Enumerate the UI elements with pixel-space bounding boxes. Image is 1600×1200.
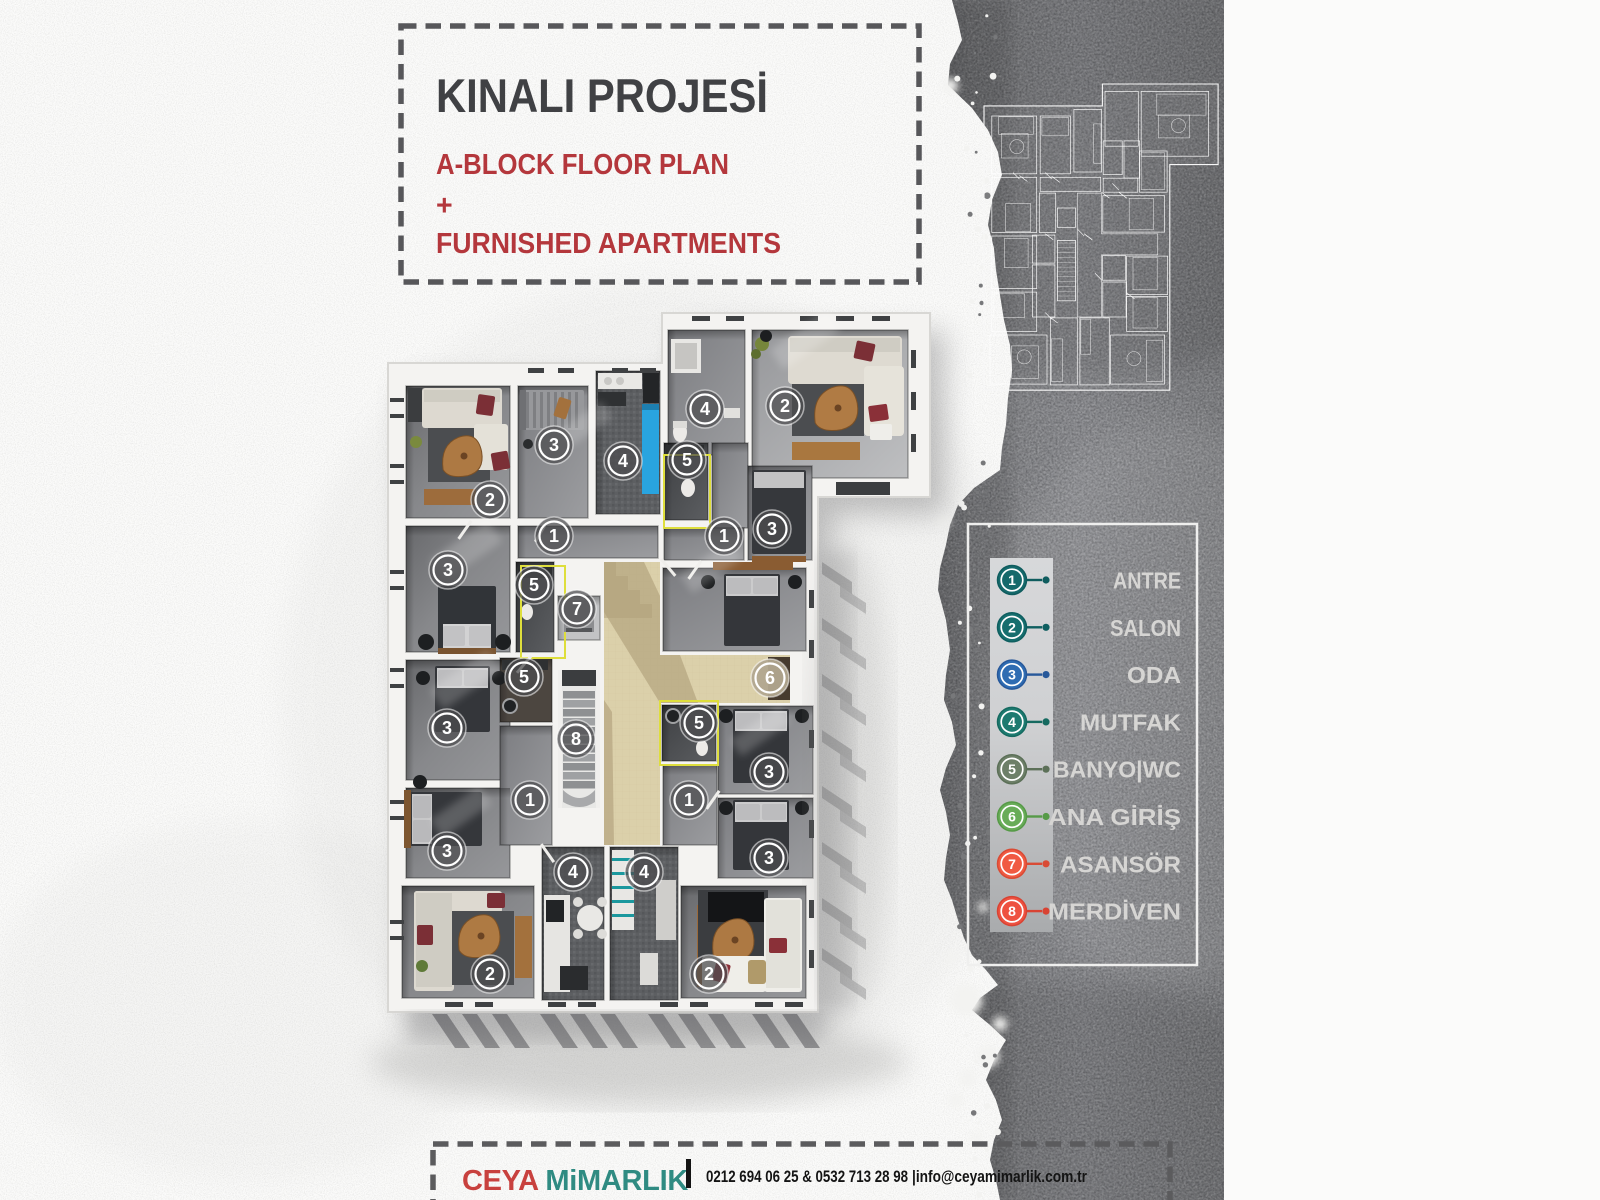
svg-text:BANYO|WC: BANYO|WC <box>1053 757 1181 783</box>
svg-text:8: 8 <box>1008 903 1016 919</box>
svg-text:ANTRE: ANTRE <box>1113 568 1181 594</box>
svg-text:1: 1 <box>719 526 729 546</box>
svg-text:SALON: SALON <box>1110 615 1181 641</box>
svg-text:4: 4 <box>568 862 578 882</box>
svg-text:1: 1 <box>1008 572 1016 588</box>
svg-text:2: 2 <box>485 964 495 984</box>
svg-text:3: 3 <box>764 762 774 782</box>
svg-text:1: 1 <box>684 790 694 810</box>
svg-text:MERDİVEN: MERDİVEN <box>1048 899 1181 925</box>
svg-text:KINALI PROJESİ: KINALI PROJESİ <box>436 69 768 122</box>
svg-text:5: 5 <box>519 667 529 687</box>
svg-text:ODA: ODA <box>1127 662 1181 688</box>
svg-text:1: 1 <box>549 526 559 546</box>
svg-text:MUTFAK: MUTFAK <box>1080 709 1181 735</box>
svg-text:2: 2 <box>485 490 495 510</box>
svg-text:5: 5 <box>682 450 692 470</box>
svg-text:3: 3 <box>764 848 774 868</box>
svg-text:2: 2 <box>704 964 714 984</box>
svg-text:|info@ceyamimarlik.com.tr: |info@ceyamimarlik.com.tr <box>912 1167 1087 1186</box>
svg-text:ANA GİRİŞ: ANA GİRİŞ <box>1048 804 1181 830</box>
svg-text:5: 5 <box>1008 761 1016 777</box>
svg-text:+: + <box>436 190 453 222</box>
svg-text:FURNISHED APARTMENTS: FURNISHED APARTMENTS <box>436 228 781 260</box>
svg-text:7: 7 <box>1008 856 1016 872</box>
svg-text:4: 4 <box>618 451 628 471</box>
svg-text:0212 694 06 25 & 0532 713 28 9: 0212 694 06 25 & 0532 713 28 98 <box>706 1167 908 1186</box>
svg-text:2: 2 <box>1008 619 1016 635</box>
svg-text:A-BLOCK FLOOR PLAN: A-BLOCK FLOOR PLAN <box>436 149 729 181</box>
svg-text:4: 4 <box>1008 714 1016 730</box>
svg-text:5: 5 <box>694 713 704 733</box>
svg-text:3: 3 <box>767 519 777 539</box>
svg-text:3: 3 <box>442 718 452 738</box>
svg-text:6: 6 <box>1008 809 1016 825</box>
svg-text:5: 5 <box>529 575 539 595</box>
svg-text:3: 3 <box>443 560 453 580</box>
svg-text:4: 4 <box>639 862 649 882</box>
svg-text:8: 8 <box>571 729 581 749</box>
svg-text:3: 3 <box>442 841 452 861</box>
svg-text:3: 3 <box>549 435 559 455</box>
svg-text:7: 7 <box>572 599 582 619</box>
svg-text:2: 2 <box>780 396 790 416</box>
svg-text:3: 3 <box>1008 667 1016 683</box>
svg-text:6: 6 <box>765 668 775 688</box>
svg-text:ASANSÖR: ASANSÖR <box>1060 851 1181 877</box>
svg-text:4: 4 <box>700 399 710 419</box>
svg-text:CEYA MiMARLIK: CEYA MiMARLIK <box>462 1165 688 1197</box>
svg-text:1: 1 <box>525 790 535 810</box>
